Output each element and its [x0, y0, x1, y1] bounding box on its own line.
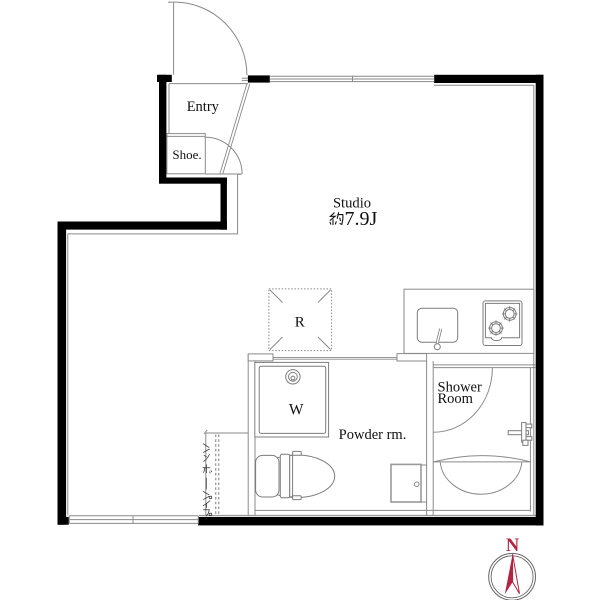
svg-text:Entry: Entry [187, 99, 220, 115]
svg-text:Room: Room [438, 391, 474, 407]
svg-text:7.9J: 7.9J [345, 208, 378, 230]
svg-text:R: R [295, 315, 305, 331]
svg-text:W: W [289, 402, 304, 419]
svg-text:Shoe.: Shoe. [172, 147, 201, 162]
svg-text:Powder rm.: Powder rm. [339, 427, 407, 443]
svg-text:N: N [506, 536, 520, 556]
